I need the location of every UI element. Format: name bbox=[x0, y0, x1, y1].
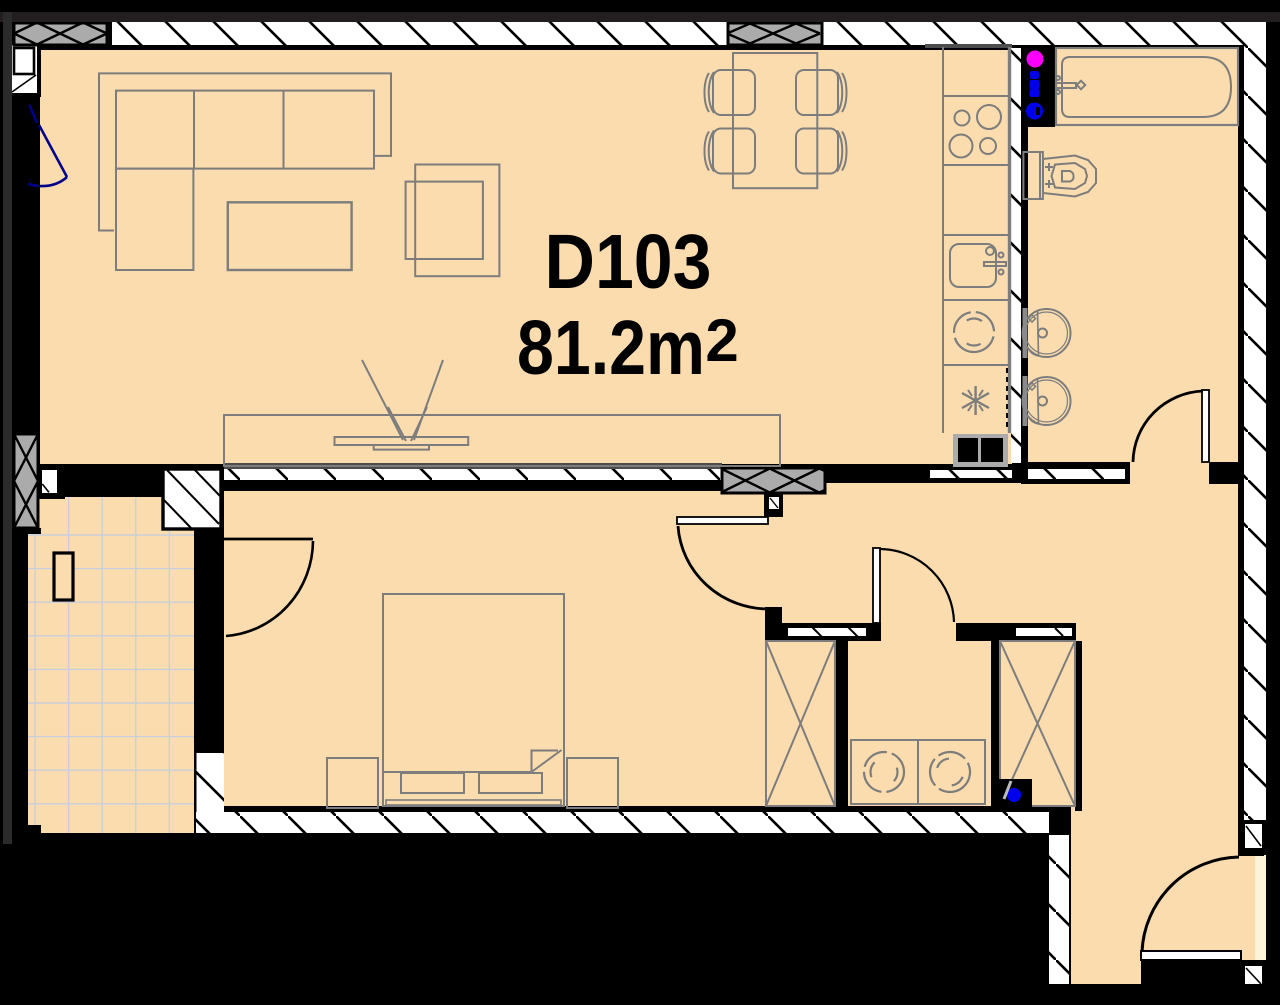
svg-text:D103: D103 bbox=[545, 219, 712, 305]
svg-text:81.2m: 81.2m bbox=[517, 305, 705, 391]
svg-text:2: 2 bbox=[705, 307, 738, 374]
